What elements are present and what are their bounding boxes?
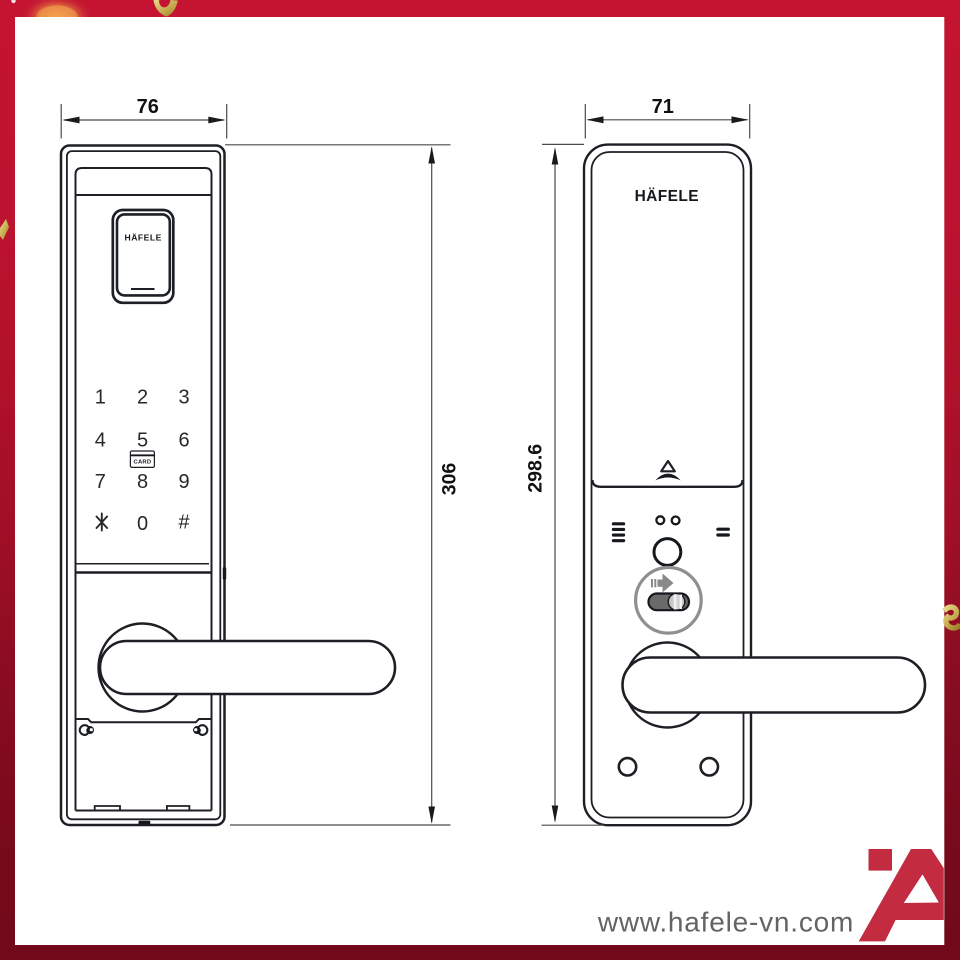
svg-text:0: 0 [137,513,148,535]
svg-text:www.hafele-vn.com: www.hafele-vn.com [597,907,854,938]
svg-text:3: 3 [179,386,190,408]
svg-text:2: 2 [137,386,148,408]
svg-text:306: 306 [438,463,460,496]
svg-text:9: 9 [179,471,190,493]
svg-text:HÄFELE: HÄFELE [125,232,162,242]
svg-text:298.6: 298.6 [525,444,547,493]
svg-text:71: 71 [652,96,674,118]
svg-text:6: 6 [179,429,190,451]
svg-text:CARD: CARD [133,460,151,466]
svg-text:76: 76 [137,96,159,118]
svg-text:HÄFELE: HÄFELE [635,188,699,205]
svg-text:7: 7 [95,471,106,493]
svg-text:5: 5 [137,429,148,451]
svg-text:#: # [179,512,191,534]
svg-text:1: 1 [95,386,106,408]
svg-text:8: 8 [137,471,148,493]
svg-text:4: 4 [95,429,106,451]
